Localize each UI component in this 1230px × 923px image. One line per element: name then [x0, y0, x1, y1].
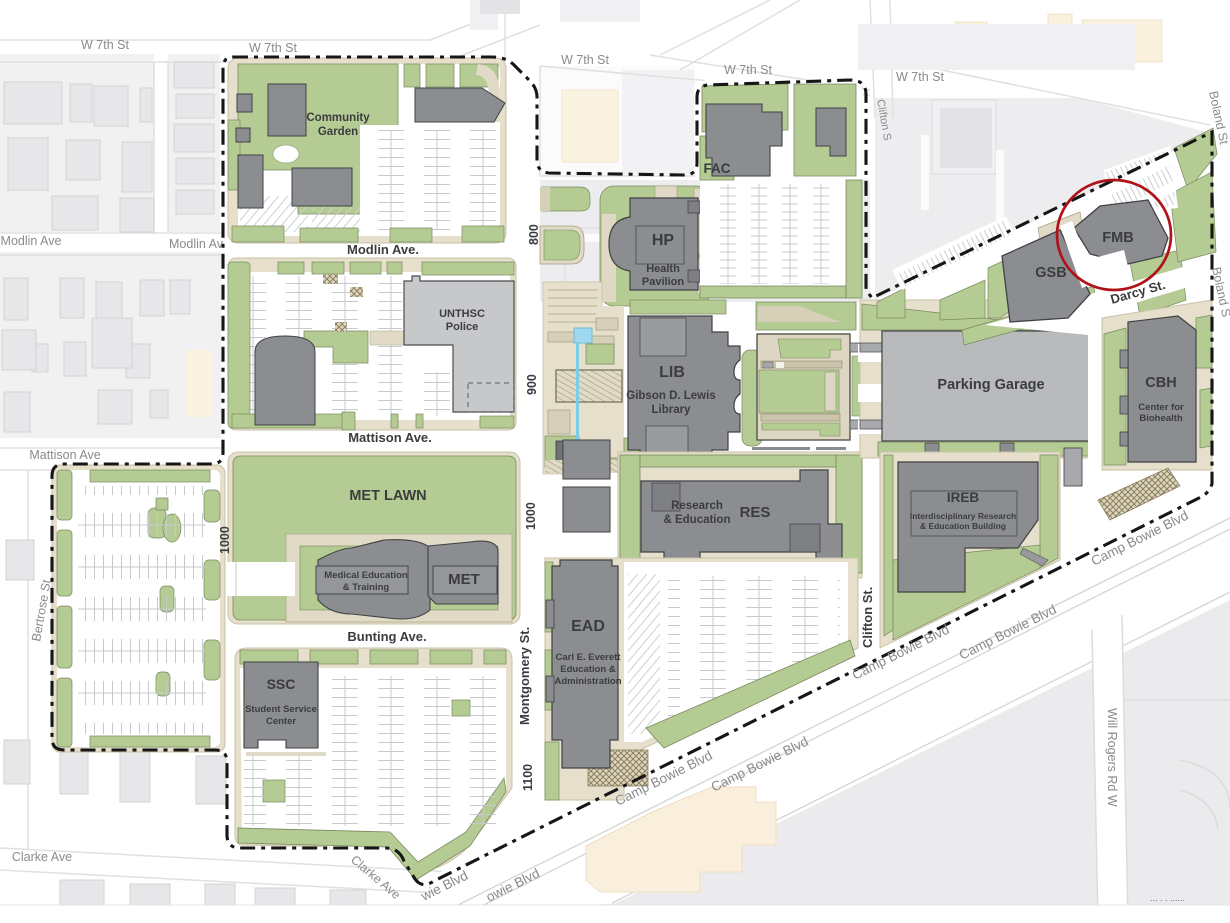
svg-text:GSB: GSB: [1035, 265, 1066, 281]
svg-text:Health: Health: [646, 263, 680, 275]
svg-text:Biohealth: Biohealth: [1139, 413, 1182, 424]
svg-text:Interdisciplinary Research: Interdisciplinary Research: [910, 511, 1016, 521]
svg-text:W 7th St: W 7th St: [249, 41, 297, 55]
svg-text:Modlin Av: Modlin Av: [169, 237, 224, 251]
svg-text:800: 800: [527, 224, 541, 245]
svg-text:Carl E. Everett: Carl E. Everett: [556, 652, 622, 663]
svg-text:W 7th St: W 7th St: [724, 63, 772, 77]
svg-text:& Training: & Training: [343, 582, 390, 593]
svg-text:RES: RES: [740, 504, 771, 521]
svg-text:MET LAWN: MET LAWN: [349, 488, 426, 504]
svg-text:1000: 1000: [524, 502, 538, 530]
svg-text:1000: 1000: [218, 526, 232, 554]
svg-text:Administration: Administration: [554, 676, 621, 687]
svg-text:Medical Education: Medical Education: [324, 570, 408, 581]
svg-text:Mattison Ave.: Mattison Ave.: [348, 430, 432, 445]
svg-text:Education &: Education &: [560, 664, 616, 675]
svg-text:Modlin Ave: Modlin Ave: [1, 234, 62, 248]
svg-text:900: 900: [525, 374, 539, 395]
svg-text:Garden: Garden: [318, 126, 358, 138]
svg-text:Parking Garage: Parking Garage: [937, 377, 1044, 393]
svg-text:FMB: FMB: [1102, 230, 1133, 246]
svg-text:Center: Center: [266, 716, 296, 727]
svg-text:... . . ......: ... . . ......: [1150, 893, 1185, 903]
svg-text:Pavilion: Pavilion: [642, 276, 684, 288]
svg-text:HP: HP: [652, 232, 675, 249]
svg-text:Bunting Ave.: Bunting Ave.: [347, 629, 426, 644]
svg-text:W 7th St: W 7th St: [561, 53, 609, 67]
svg-text:Mattison Ave: Mattison Ave: [29, 448, 100, 462]
svg-text:Center for: Center for: [1138, 402, 1184, 413]
svg-text:MET: MET: [448, 571, 480, 588]
svg-text:W 7th St: W 7th St: [81, 38, 129, 52]
svg-text:Clifton St.: Clifton St.: [860, 587, 875, 648]
svg-text:& Education Building: & Education Building: [920, 521, 1006, 531]
svg-text:Gibson D. Lewis: Gibson D. Lewis: [626, 390, 715, 402]
svg-text:W 7th St: W 7th St: [896, 70, 944, 84]
svg-text:Clarke Ave: Clarke Ave: [12, 850, 72, 864]
svg-text:Modlin Ave.: Modlin Ave.: [347, 242, 419, 257]
svg-text:1100: 1100: [521, 764, 535, 791]
svg-text:Library: Library: [652, 404, 692, 416]
svg-text:Research: Research: [671, 500, 723, 512]
svg-text:IREB: IREB: [947, 490, 980, 505]
svg-text:SSC: SSC: [267, 676, 296, 692]
svg-text:CBH: CBH: [1145, 375, 1176, 391]
svg-text:LIB: LIB: [659, 364, 685, 381]
svg-text:UNTHSC: UNTHSC: [439, 308, 485, 320]
svg-text:FAC: FAC: [704, 161, 731, 176]
svg-text:Police: Police: [446, 321, 478, 333]
svg-text:Community: Community: [306, 112, 370, 124]
svg-text:Will Rogers Rd W: Will Rogers Rd W: [1105, 708, 1119, 807]
svg-text:Montgomery St.: Montgomery St.: [517, 627, 532, 725]
svg-text:EAD: EAD: [571, 618, 605, 635]
svg-text:& Education: & Education: [663, 514, 730, 526]
svg-text:Student Service: Student Service: [245, 704, 317, 715]
